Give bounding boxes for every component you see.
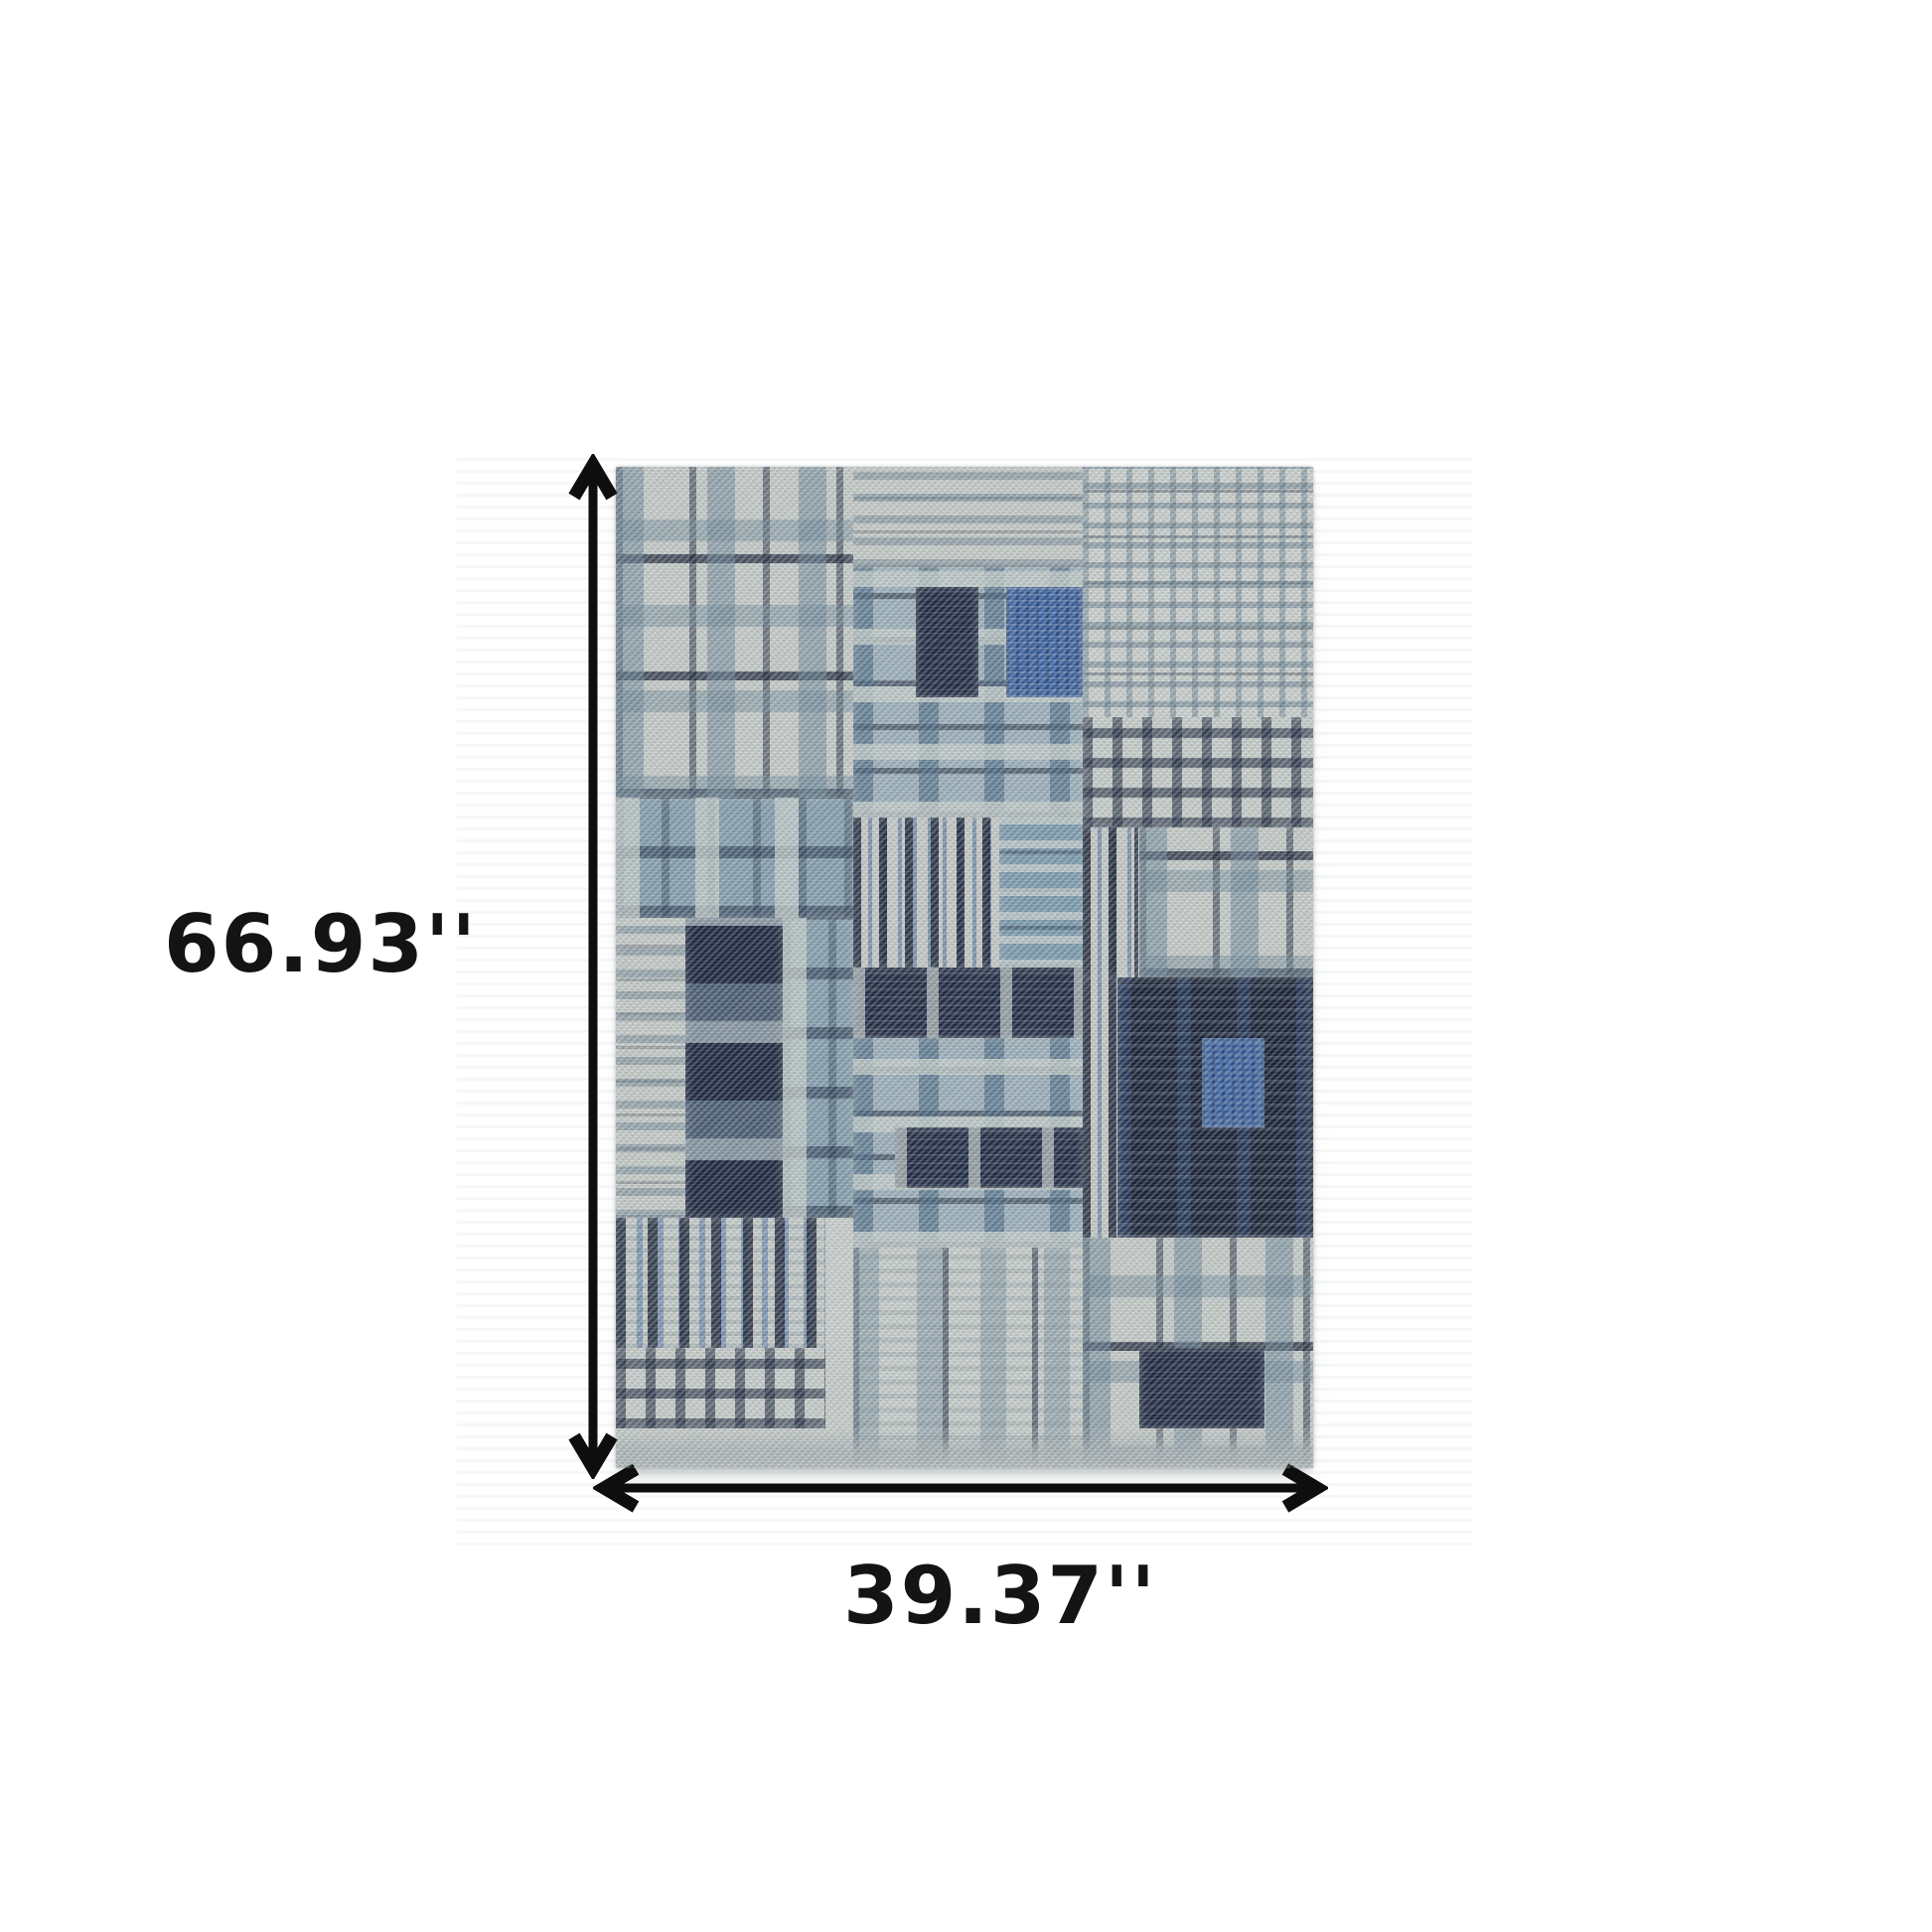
rug-patch-navy-block <box>1139 1348 1264 1428</box>
rug-patch-vstripes-wide <box>616 1218 825 1348</box>
rug-patch-plaid-a <box>616 467 853 798</box>
rug-patch-plaid-a <box>1139 827 1314 977</box>
rug-patch-hstripes <box>853 467 1084 567</box>
height-dimension-arrow <box>563 454 623 1479</box>
rug-patch-vstripes <box>1083 827 1138 977</box>
height-dimension-label: 66.93'' <box>122 897 520 992</box>
rug-patch-blue-block <box>1006 587 1083 697</box>
rug-patch-light <box>825 1218 853 1348</box>
width-dimension-label: 39.37'' <box>802 1549 1199 1644</box>
rug-patch-hband-navy <box>895 1127 1084 1187</box>
rug-patch-navy-col <box>685 918 783 1218</box>
rug-patch-plaid-blue <box>616 798 853 918</box>
rug-patch-check <box>616 1348 825 1428</box>
rug-patch-hband-navy <box>853 967 1084 1038</box>
width-dimension-arrow <box>593 1458 1328 1518</box>
rug-patch-vstripes <box>853 817 999 967</box>
product-dimension-diagram: 66.93'' 39.37'' <box>0 0 1932 1932</box>
rug-patch-plaid-blue <box>783 918 852 1218</box>
rug-patch-blue-h <box>999 817 1083 967</box>
rug-patch-check <box>1083 717 1313 827</box>
rug-image <box>616 467 1313 1468</box>
rug-patch-navy-block <box>916 587 978 697</box>
rug-patch-blue-block <box>1202 1038 1264 1128</box>
rug-patch-hstripes <box>616 918 685 1218</box>
rug-patch-vstripes <box>1083 977 1117 1238</box>
